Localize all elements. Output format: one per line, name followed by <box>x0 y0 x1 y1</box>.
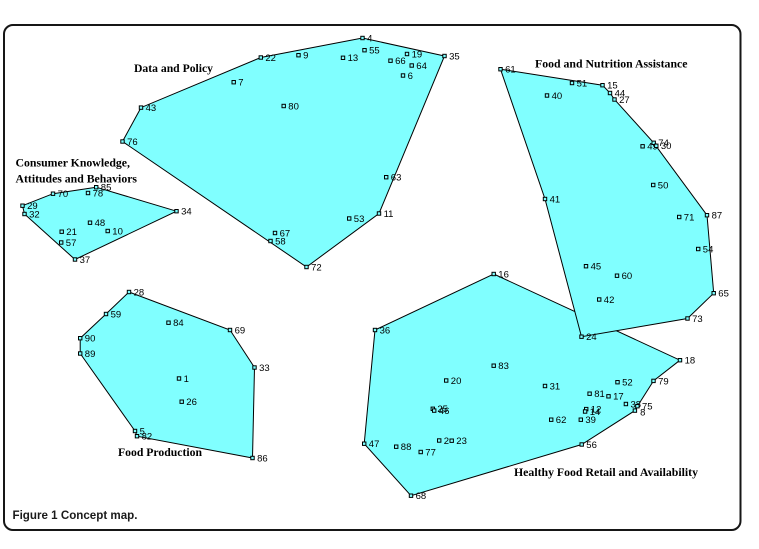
svg-text:Food Production: Food Production <box>118 447 203 459</box>
svg-text:34: 34 <box>181 207 192 218</box>
svg-text:55: 55 <box>369 46 380 57</box>
svg-text:1: 1 <box>184 374 189 385</box>
svg-text:30: 30 <box>661 141 672 152</box>
svg-text:79: 79 <box>658 376 669 387</box>
svg-text:31: 31 <box>550 381 561 392</box>
svg-text:40: 40 <box>552 91 563 102</box>
svg-text:4: 4 <box>367 33 372 44</box>
svg-text:42: 42 <box>604 295 615 306</box>
svg-text:Data and Policy: Data and Policy <box>134 63 213 75</box>
svg-text:Consumer Knowledge,: Consumer Knowledge, <box>16 158 131 170</box>
svg-text:9: 9 <box>303 51 308 62</box>
svg-text:10: 10 <box>112 226 123 237</box>
svg-text:90: 90 <box>85 334 96 345</box>
svg-text:69: 69 <box>235 325 246 336</box>
svg-text:27: 27 <box>619 95 630 106</box>
svg-text:24: 24 <box>586 332 597 343</box>
svg-text:51: 51 <box>577 78 588 89</box>
svg-text:22: 22 <box>265 53 276 64</box>
svg-text:Food and Nutrition Assistance: Food and Nutrition Assistance <box>535 59 688 71</box>
svg-text:33: 33 <box>259 363 270 374</box>
svg-text:87: 87 <box>712 211 723 222</box>
svg-text:8: 8 <box>640 408 645 419</box>
svg-text:82: 82 <box>142 432 153 443</box>
svg-text:Healthy Food Retail and Availa: Healthy Food Retail and Availability <box>514 467 698 479</box>
svg-text:88: 88 <box>401 442 412 453</box>
svg-text:50: 50 <box>658 180 669 191</box>
svg-text:80: 80 <box>288 101 299 112</box>
svg-text:65: 65 <box>718 289 729 300</box>
svg-text:Attitudes and Behaviors: Attitudes and Behaviors <box>16 174 138 186</box>
svg-text:48: 48 <box>95 218 106 229</box>
svg-text:66: 66 <box>395 56 406 67</box>
svg-text:71: 71 <box>684 212 695 223</box>
svg-text:26: 26 <box>186 397 197 408</box>
svg-text:47: 47 <box>369 439 380 450</box>
svg-text:86: 86 <box>257 453 268 464</box>
svg-text:2: 2 <box>444 436 449 447</box>
svg-text:62: 62 <box>556 415 567 426</box>
svg-text:76: 76 <box>127 137 138 148</box>
svg-text:57: 57 <box>66 238 77 249</box>
svg-text:63: 63 <box>391 173 402 184</box>
svg-text:60: 60 <box>622 271 633 282</box>
svg-text:46: 46 <box>439 406 450 417</box>
svg-text:32: 32 <box>29 209 40 220</box>
svg-text:70: 70 <box>58 189 69 200</box>
svg-text:58: 58 <box>275 236 286 247</box>
svg-text:78: 78 <box>93 188 104 199</box>
svg-text:23: 23 <box>456 436 467 447</box>
svg-text:13: 13 <box>348 53 359 64</box>
svg-text:39: 39 <box>585 415 596 426</box>
svg-text:28: 28 <box>134 287 145 298</box>
svg-text:54: 54 <box>703 244 714 255</box>
svg-text:17: 17 <box>613 392 624 403</box>
svg-text:89: 89 <box>85 349 96 360</box>
svg-text:68: 68 <box>416 491 427 502</box>
svg-text:52: 52 <box>622 378 633 389</box>
svg-text:7: 7 <box>238 78 243 89</box>
svg-text:53: 53 <box>354 214 365 225</box>
svg-text:21: 21 <box>66 227 77 238</box>
svg-text:73: 73 <box>692 314 703 325</box>
svg-text:43: 43 <box>146 103 157 114</box>
svg-text:41: 41 <box>550 194 561 205</box>
svg-text:16: 16 <box>498 269 509 280</box>
svg-text:83: 83 <box>498 361 509 372</box>
svg-text:11: 11 <box>384 209 394 220</box>
svg-text:56: 56 <box>586 440 597 451</box>
svg-text:20: 20 <box>451 376 462 387</box>
svg-text:45: 45 <box>591 262 602 273</box>
svg-text:18: 18 <box>685 356 696 367</box>
svg-text:6: 6 <box>408 71 413 82</box>
svg-text:64: 64 <box>416 61 427 72</box>
svg-text:36: 36 <box>380 325 391 336</box>
svg-text:35: 35 <box>449 51 460 62</box>
svg-text:Figure 1 Concept map.: Figure 1 Concept map. <box>13 509 138 522</box>
svg-text:81: 81 <box>594 389 605 400</box>
svg-text:72: 72 <box>311 262 322 273</box>
svg-text:61: 61 <box>505 65 516 76</box>
svg-text:59: 59 <box>111 309 122 320</box>
svg-text:37: 37 <box>80 255 91 266</box>
svg-text:84: 84 <box>173 318 184 329</box>
svg-text:77: 77 <box>425 447 436 458</box>
svg-text:19: 19 <box>412 49 423 60</box>
